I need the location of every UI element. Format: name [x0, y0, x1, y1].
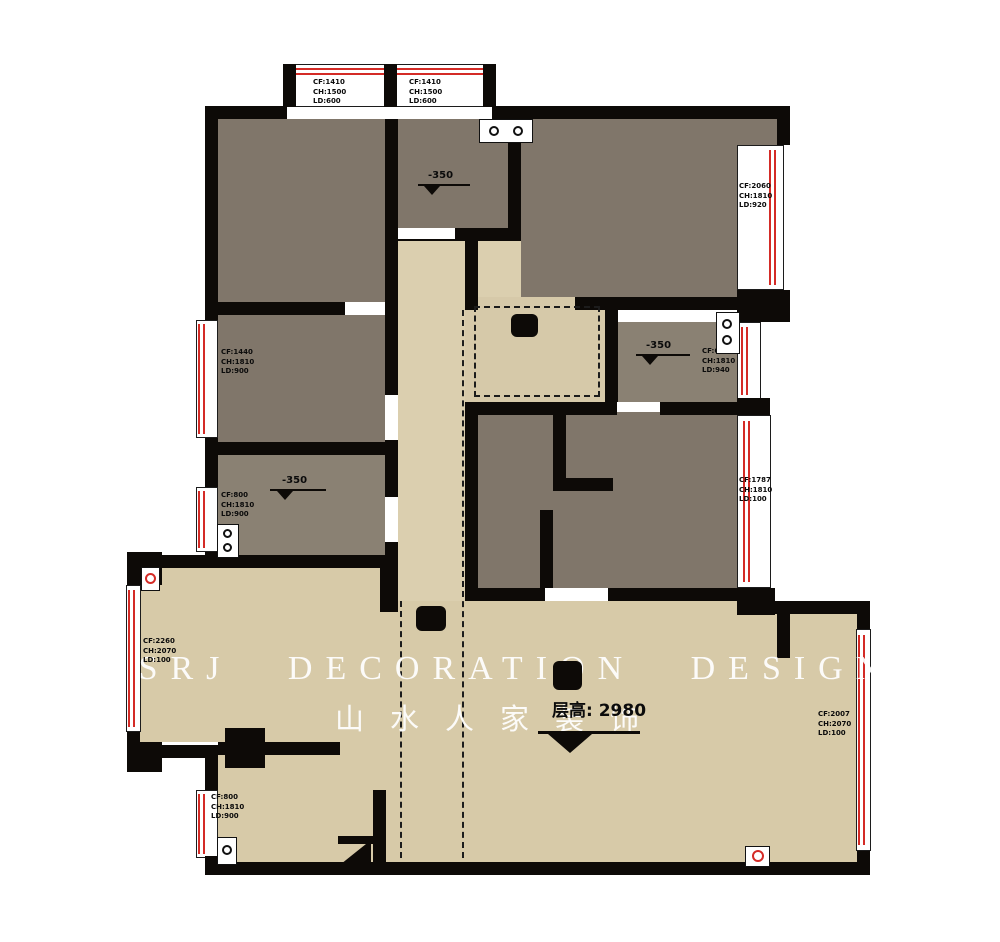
window-label: CF:2007CH:2070LD:100	[818, 710, 851, 739]
window-red-line	[296, 68, 384, 70]
wall	[385, 440, 398, 455]
floor-plan: SSRJ DECORATION DESIGN 山水人家装饰 CF:1410CH:…	[0, 0, 1000, 942]
sink-bowl-icon	[223, 529, 232, 538]
sink-bowl-icon	[513, 126, 523, 136]
level-marker-icon	[277, 491, 293, 500]
room-upper-right	[521, 119, 737, 297]
window-label: CF:1410CH:1500LD:600	[409, 78, 442, 107]
wall	[465, 402, 617, 415]
sprinkler-circle-icon	[145, 573, 156, 584]
wall	[205, 302, 345, 315]
wall	[205, 745, 218, 790]
wall	[385, 119, 398, 315]
door-leaf-icon	[336, 840, 371, 868]
wall-column	[380, 555, 398, 612]
sink-bowl-icon	[722, 319, 732, 329]
window-red-line	[296, 73, 384, 75]
wall	[465, 588, 545, 601]
wall	[857, 601, 870, 629]
window-label: CF:1440CH:1810LD:900	[221, 348, 254, 377]
sink-bowl-icon	[223, 543, 232, 552]
window-red-line	[203, 324, 205, 434]
level-marker-label: -350	[282, 475, 307, 486]
window-label: CF:1787CH:1810LD:100	[739, 476, 772, 505]
sink-bowl-icon	[722, 335, 732, 345]
wall	[605, 310, 618, 402]
window-red-line	[774, 150, 776, 285]
wall	[737, 398, 770, 415]
bay-window-mullion	[283, 64, 296, 107]
wall	[385, 315, 398, 395]
room-middle-left-bedroom	[218, 315, 385, 442]
column-icon	[416, 606, 446, 631]
level-marker-icon	[642, 356, 658, 365]
window-red-line	[746, 327, 748, 395]
wall	[127, 555, 398, 568]
wall	[127, 568, 140, 585]
wall	[205, 106, 218, 320]
wall	[608, 588, 750, 601]
window-red-line	[198, 491, 200, 548]
level-marker-icon	[424, 186, 440, 195]
floor-height-label: 层高: 2980	[552, 702, 646, 721]
wall	[492, 106, 790, 119]
drain-circle-icon	[222, 845, 232, 855]
wall	[660, 402, 737, 415]
wall	[465, 402, 478, 601]
window-red-line	[769, 150, 771, 285]
window-red-line	[203, 794, 205, 854]
window-red-line	[198, 324, 200, 434]
window-red-line	[198, 794, 200, 854]
window-label: CF:2060CH:1810LD:920	[739, 182, 772, 211]
sink-bowl-icon	[489, 126, 499, 136]
sink-double-icon	[479, 119, 533, 143]
window-red-line	[397, 68, 483, 70]
window-red-line	[397, 73, 483, 75]
floor-height-icon	[548, 734, 592, 753]
wall	[737, 290, 790, 322]
bay-window-mullion	[483, 64, 496, 107]
ceiling-dashed-line	[462, 310, 464, 858]
window-label: CF:2260CH:2070LD:100	[143, 637, 176, 666]
window-red-line	[203, 491, 205, 548]
wall	[385, 455, 398, 497]
window-red-line	[741, 327, 743, 395]
column-icon	[511, 314, 538, 337]
corridor-pocket	[478, 241, 521, 297]
room-right-middle-bedroom	[478, 412, 737, 588]
wall	[385, 542, 398, 555]
room-upper-left-bedroom	[218, 119, 385, 302]
wall	[777, 106, 790, 145]
threshold-line	[398, 239, 455, 241]
level-marker-label: -350	[428, 170, 453, 181]
sprinkler-circle-icon	[752, 850, 764, 862]
wall	[205, 442, 398, 455]
column-icon	[553, 661, 582, 690]
window-label: CF:800CH:1810LD:900	[211, 793, 244, 822]
wall	[553, 478, 613, 491]
bay-window-mullion	[384, 64, 397, 107]
wall	[465, 241, 478, 310]
right-top-window	[737, 145, 784, 290]
wall	[737, 588, 775, 615]
window-label: CF:1410CH:1500LD:600	[313, 78, 346, 107]
window-label: CF:800CH:1810LD:900	[221, 491, 254, 520]
room-upper-right-corner	[737, 119, 777, 145]
wall	[205, 862, 870, 875]
wall	[540, 510, 553, 588]
level-marker-label: -350	[646, 340, 671, 351]
corridor	[398, 241, 465, 601]
